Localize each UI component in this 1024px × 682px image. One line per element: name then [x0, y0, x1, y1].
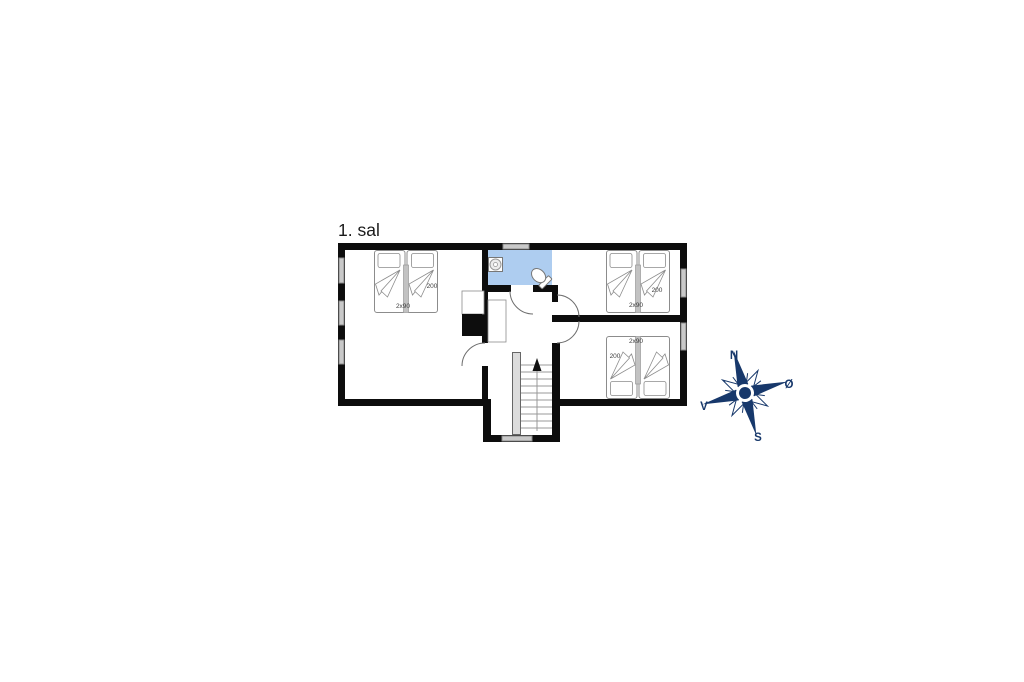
- stair-rail: [513, 353, 521, 435]
- sink-icon: [489, 258, 503, 272]
- floor-plan-drawing: 1. sal: [0, 0, 1024, 682]
- floor-title: 1. sal: [338, 220, 380, 240]
- door-arc-bathroom: [510, 291, 533, 314]
- bed-width-label: 2x90: [629, 302, 643, 309]
- door-arc-top-right-bedroom: [557, 295, 579, 317]
- bed-width-label: 2x90: [629, 338, 643, 345]
- compass-label-north: N: [730, 350, 738, 362]
- window: [502, 436, 532, 441]
- window: [503, 244, 529, 249]
- window: [681, 323, 686, 350]
- closet: [462, 291, 484, 314]
- double-bed-bottom-right: [607, 337, 670, 399]
- compass-label-west: V: [700, 401, 708, 413]
- window: [339, 301, 344, 325]
- door-arc-bottom-right-bedroom: [557, 321, 579, 343]
- closet: [488, 300, 506, 342]
- window: [339, 258, 344, 283]
- compass-rose: N Ø S V: [691, 339, 799, 447]
- compass-label-east: Ø: [785, 379, 794, 391]
- window: [339, 340, 344, 364]
- window: [681, 269, 686, 297]
- stair-direction-arrow: [533, 358, 542, 431]
- bed-length-label: 200: [652, 287, 663, 294]
- bed-width-label: 2x90: [396, 303, 410, 310]
- floor-plan-page: 1. sal: [0, 0, 1024, 682]
- bed-length-label: 200: [610, 353, 621, 360]
- chimney: [462, 314, 482, 336]
- compass-label-south: S: [754, 432, 762, 444]
- bed-length-label: 200: [427, 283, 438, 290]
- door-arc-left-bedroom: [462, 343, 485, 366]
- staircase: [513, 353, 553, 435]
